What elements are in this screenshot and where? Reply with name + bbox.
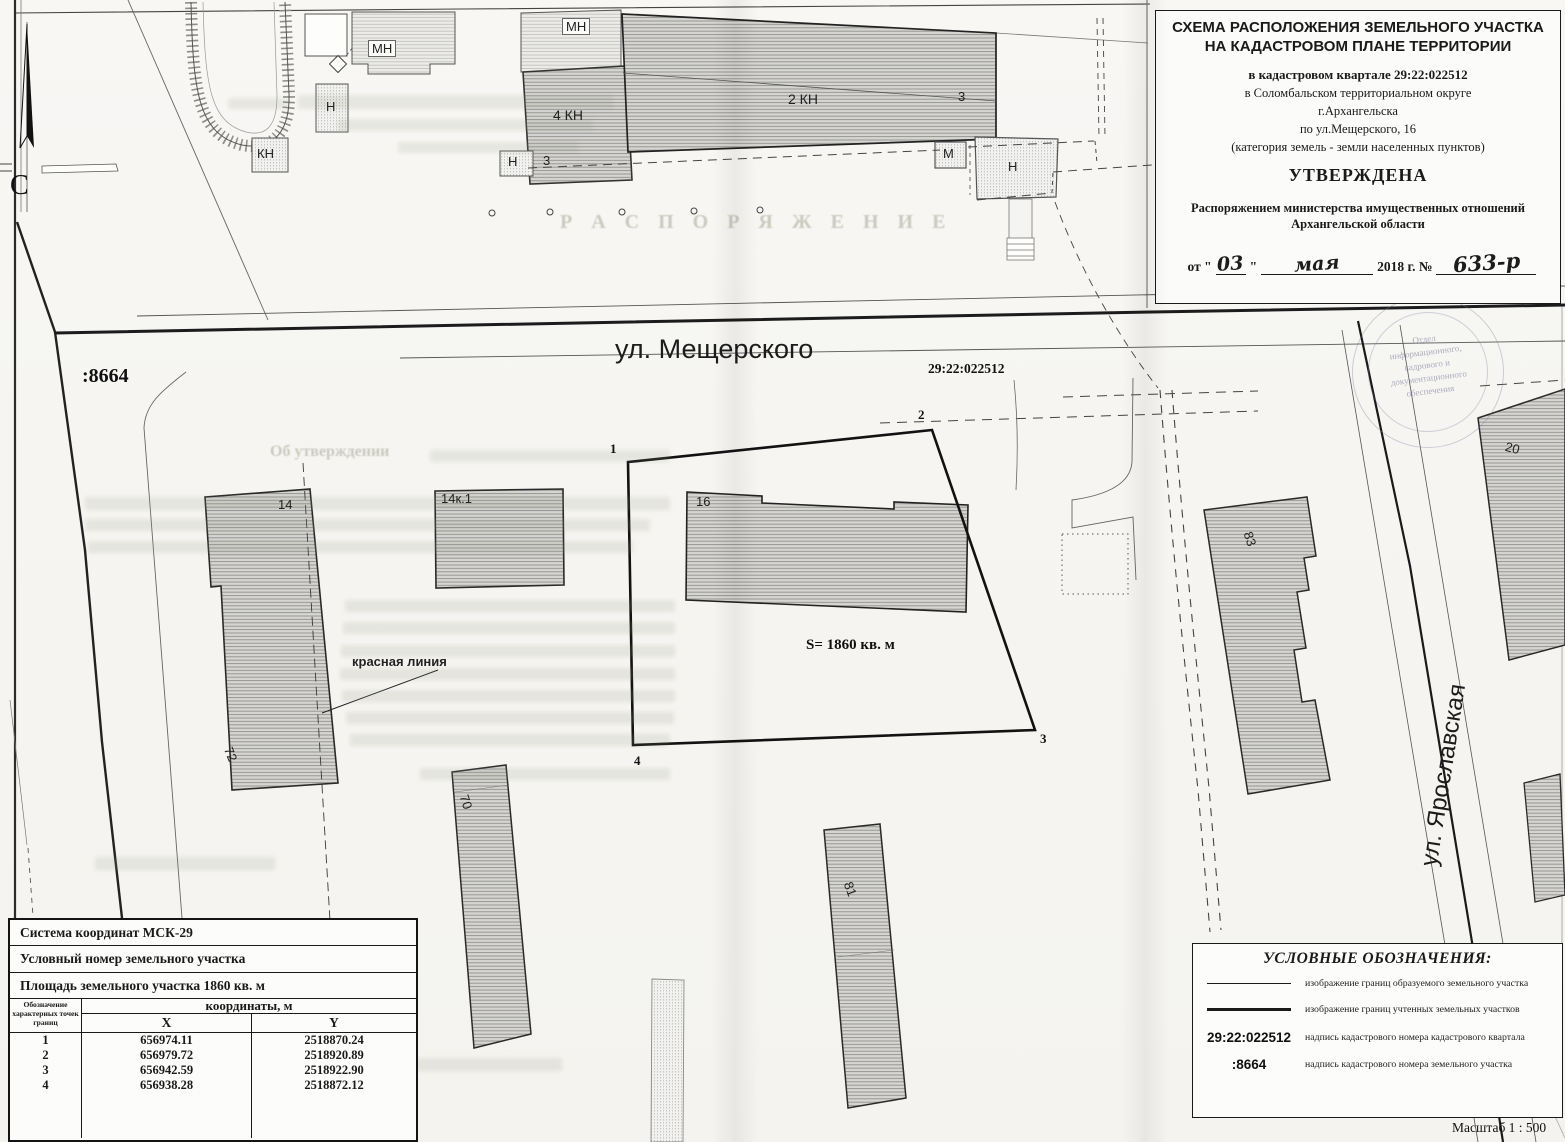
- table-col-x-values: 656974.11 656979.72 656942.59 656938.28: [82, 1033, 252, 1138]
- legend-item-label: изображение границ образуемого земельног…: [1305, 978, 1528, 989]
- handwritten-day: 03: [1217, 255, 1245, 274]
- table-header: Обозначение характерных точек границ коо…: [10, 999, 416, 1033]
- y-value-cell: 2518920.89: [252, 1048, 416, 1063]
- building-label-14k1: 14к.1: [441, 492, 472, 505]
- point-number-cell: 3: [10, 1063, 81, 1078]
- building-14-shape: [205, 489, 338, 790]
- order-date-line: от "03" мая 2018 г. № 633-р: [1174, 254, 1550, 275]
- parcel-number-label: :8664: [82, 366, 129, 386]
- thin-line-symbol: [1201, 983, 1297, 984]
- table-row-parcel-area: Площадь земельного участка 1860 кв. м: [10, 973, 416, 999]
- table-header-points: Обозначение характерных точек границ: [10, 999, 82, 1032]
- building-unlabeled-bottom-shape: [651, 979, 684, 1142]
- address-line: по ул.Мещерского, 16: [1156, 122, 1560, 137]
- y-value-cell: 2518872.12: [252, 1078, 416, 1093]
- date-year: 2018 г. №: [1377, 259, 1432, 275]
- scale-label: Масштаб 1 : 500: [1452, 1120, 1546, 1136]
- building-label-3a: 3: [543, 154, 550, 167]
- building-unlabeled-shape: [305, 14, 347, 56]
- building-label-20: 20: [1504, 440, 1521, 456]
- legend-item-registered-boundary: изображение границ учтенных земельных уч…: [1201, 1004, 1520, 1015]
- table-row-coordinate-system: Система координат МСК-29: [10, 920, 416, 946]
- date-close-quote: ": [1250, 259, 1258, 275]
- building-20b-shape: [1524, 774, 1565, 902]
- thick-line-symbol: [1201, 1008, 1297, 1011]
- building-label-n1: Н: [326, 100, 335, 113]
- legend-box: УСЛОВНЫЕ ОБОЗНАЧЕНИЯ: изображение границ…: [1192, 943, 1563, 1118]
- building-label-14: 14: [278, 498, 292, 511]
- point-label-4: 4: [634, 754, 641, 767]
- building-label-mn2: МН: [562, 18, 590, 35]
- x-value-cell: 656979.72: [82, 1048, 251, 1063]
- north-label: С: [10, 172, 29, 200]
- building-label-3b: 3: [958, 90, 965, 103]
- city-line: г.Архангельска: [1156, 104, 1560, 119]
- table-header-x: X: [82, 1014, 252, 1032]
- table-col-point-numbers: 1 2 3 4: [10, 1033, 82, 1138]
- coordinates-table: Система координат МСК-29 Условный номер …: [8, 918, 418, 1142]
- scheme-title-line2: НА КАДАСТРОВОМ ПЛАНЕ ТЕРРИТОРИИ: [1156, 38, 1560, 57]
- street-label-meshcherskogo: ул. Мещерского: [615, 336, 813, 363]
- approved-label: УТВЕРЖДЕНА: [1156, 165, 1560, 186]
- handwritten-month: мая: [1294, 254, 1341, 274]
- y-value-cell: 2518870.24: [252, 1033, 416, 1048]
- building-16-shape: [686, 492, 968, 612]
- building-label-m: М: [943, 147, 954, 160]
- point-label-1: 1: [610, 442, 617, 455]
- building-label-n2: Н: [508, 155, 517, 168]
- point-label-3: 3: [1040, 732, 1047, 745]
- quarter-number-symbol: 29:22:022512: [1201, 1030, 1297, 1045]
- building-label-kn: КН: [257, 147, 274, 160]
- title-block: СХЕМА РАСПОЛОЖЕНИЯ ЗЕМЕЛЬНОГО УЧАСТКА НА…: [1155, 10, 1561, 304]
- point-label-2: 2: [918, 408, 925, 421]
- ghost-approval-fragment: Об утверждении: [270, 444, 389, 460]
- order-issuer-line: Распоряжением министерства имущественных…: [1156, 200, 1560, 233]
- legend-title: УСЛОВНЫЕ ОБОЗНАЧЕНИЯ:: [1193, 950, 1562, 968]
- cadastral-quarter-line: в кадастровом квартале 29:22:022512: [1156, 67, 1560, 83]
- point-number-cell: 2: [10, 1048, 81, 1063]
- district-line: в Соломбальском территориальном округе: [1156, 86, 1560, 101]
- diamond-structure-shape: [330, 56, 347, 73]
- building-label-2kn: 2 КН: [788, 92, 818, 106]
- building-20-shape: [1478, 389, 1565, 660]
- x-value-cell: 656974.11: [82, 1033, 251, 1048]
- legend-item-label: изображение границ учтенных земельных уч…: [1305, 1004, 1520, 1015]
- ditch-slope: [191, 2, 289, 146]
- point-number-cell: 1: [10, 1033, 81, 1048]
- scheme-title-line1: СХЕМА РАСПОЛОЖЕНИЯ ЗЕМЕЛЬНОГО УЧАСТКА: [1156, 19, 1560, 38]
- right-side-group: [880, 378, 1565, 932]
- building-2kn-shape: [622, 14, 996, 152]
- x-value-cell: 656938.28: [82, 1078, 251, 1093]
- date-prefix: от ": [1188, 259, 1212, 275]
- building-label-16: 16: [696, 495, 710, 508]
- parcel-group: [628, 430, 1035, 745]
- building-label-4kn: 4 КН: [553, 108, 583, 122]
- handwritten-order-number: 633-р: [1452, 252, 1520, 276]
- building-83-shape: [1204, 497, 1330, 794]
- land-category-line: (категория земель - земли населенных пун…: [1156, 140, 1560, 155]
- order-issuer-1: Распоряжением министерства имущественных…: [1191, 201, 1525, 215]
- ghost-order-word: Р А С П О Р Я Ж Е Н И Е: [560, 212, 952, 232]
- legend-item-quarter-number: 29:22:022512 надпись кадастрового номера…: [1201, 1030, 1525, 1045]
- building-label-n3: Н: [1008, 160, 1017, 173]
- x-value-cell: 656942.59: [82, 1063, 251, 1078]
- quarter-number-label: 29:22:022512: [928, 362, 1005, 376]
- table-header-y: Y: [252, 1014, 416, 1032]
- point-number-cell: 4: [10, 1078, 81, 1093]
- parcel-number-symbol: :8664: [1201, 1057, 1297, 1072]
- table-col-y-values: 2518870.24 2518920.89 2518922.90 2518872…: [252, 1033, 416, 1138]
- legend-item-parcel-number: :8664 надпись кадастрового номера земель…: [1201, 1057, 1512, 1072]
- y-value-cell: 2518922.90: [252, 1063, 416, 1078]
- legend-item-label: надпись кадастрового номера кадастрового…: [1305, 1032, 1525, 1043]
- quarter-number-sample: 29:22:022512: [1207, 1030, 1291, 1045]
- cadastral-scheme-page: Р А С П О Р Я Ж Е Н И Е Об утверждении О…: [0, 0, 1565, 1142]
- legend-item-new-boundary: изображение границ образуемого земельног…: [1201, 978, 1528, 989]
- area-label: S= 1860 кв. м: [806, 638, 895, 653]
- order-issuer-2: Архангельской области: [1291, 217, 1425, 231]
- buildings-bottom: [452, 765, 906, 1142]
- red-line-label: красная линия: [352, 655, 447, 668]
- parcel-number-sample: :8664: [1232, 1057, 1267, 1072]
- table-data: 1 2 3 4 656974.11 656979.72 656942.59 65…: [10, 1033, 416, 1138]
- table-row-parcel-number: Условный номер земельного участка: [10, 946, 416, 973]
- building-81-shape: [824, 824, 906, 1108]
- legend-item-label: надпись кадастрового номера земельного у…: [1305, 1059, 1512, 1070]
- building-label-mn1: МН: [368, 40, 396, 57]
- boundary-lines: [10, 0, 268, 918]
- table-header-coordinates: координаты, м: [82, 999, 416, 1014]
